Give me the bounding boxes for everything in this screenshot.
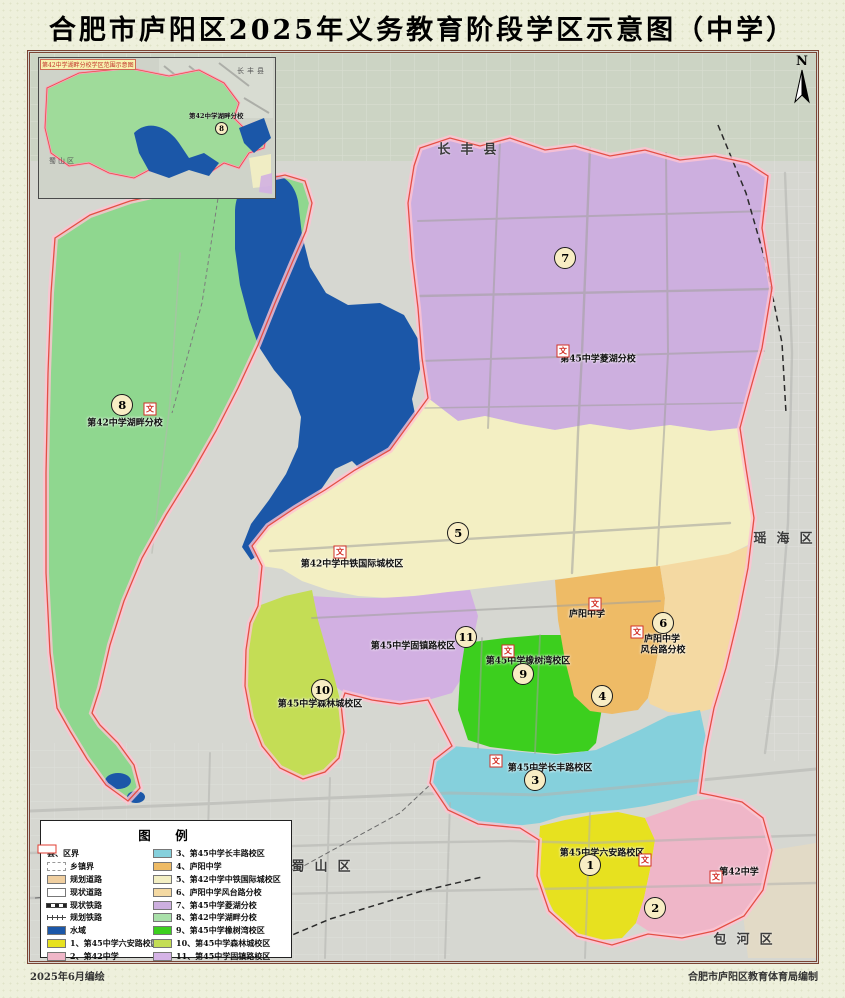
legend-item: 3、第45中学长丰路校区: [153, 847, 285, 860]
legend-item: 5、第42中学中铁国际城校区: [153, 873, 285, 886]
legend-item-label: 1、第45中学六安路校区: [70, 938, 159, 949]
school-icon: 文: [710, 871, 723, 884]
legend-swatch: [153, 913, 172, 922]
school-icon: 文: [334, 546, 347, 559]
school-icon: 文: [631, 626, 644, 639]
legend-item-label: 6、庐阳中学风台路分校: [176, 887, 262, 898]
district-number-badge: 8: [111, 394, 133, 416]
legend-column-left: 县、区界乡镇界规划道路现状道路现状铁路规划铁路水域1、第45中学六安路校区2、第…: [47, 847, 153, 963]
legend-item: 6、庐阳中学风台路分校: [153, 886, 285, 899]
legend-item: 现状铁路: [47, 899, 153, 912]
legend-swatch: [47, 888, 66, 897]
legend-swatch: [153, 926, 172, 935]
inset-map-graphic: [39, 58, 273, 196]
legend-item-label: 水域: [70, 925, 86, 936]
school-district-label: 风台路分校: [640, 643, 685, 656]
district-number-badge: 2: [644, 897, 666, 919]
district-number-badge: 4: [591, 685, 613, 707]
legend-swatch: [38, 844, 57, 853]
legend-swatch: [153, 875, 172, 884]
legend-item-label: 11、第45中学固镇路校区: [176, 951, 270, 962]
district-number-badge: 6: [652, 612, 674, 634]
footer-date: 2025年6月编绘: [30, 968, 105, 983]
county-label: 长丰县: [437, 139, 506, 158]
district-number-badge: 3: [524, 769, 546, 791]
inset-circle-8: 8: [215, 122, 228, 135]
inset-map: 第42中学湖畔分校学区范围示意图 长丰县 蜀山区 第42中学湖畔分校 8: [38, 57, 276, 199]
legend-swatch: [47, 926, 66, 935]
legend-title: 图 例: [47, 825, 285, 844]
school-icon: 文: [589, 598, 602, 611]
school-district-label: 第42中学湖畔分校: [87, 416, 163, 429]
legend-item: 2、第42中学: [47, 950, 153, 963]
county-label: 蜀山区: [291, 856, 360, 875]
page: { "title": "合肥市庐阳区2025年义务教育阶段学区示意图（中学）",…: [0, 0, 845, 998]
legend-item-label: 乡镇界: [70, 861, 94, 872]
legend-item: 乡镇界: [47, 860, 153, 873]
legend-item-label: 9、第45中学橡树湾校区: [176, 925, 265, 936]
legend-item: 11、第45中学固镇路校区: [153, 950, 285, 963]
inset-school-label: 第42中学湖畔分校: [189, 110, 244, 120]
school-district-label: 第45中学六安路校区: [560, 846, 645, 859]
legend-swatch: [153, 901, 172, 910]
legend-item-label: 3、第45中学长丰路校区: [176, 848, 265, 859]
legend: 图 例 县、区界乡镇界规划道路现状道路现状铁路规划铁路水域1、第45中学六安路校…: [40, 820, 292, 958]
legend-swatch: [47, 915, 66, 920]
district-number-badge: 9: [512, 663, 534, 685]
legend-item-label: 规划道路: [70, 874, 102, 885]
legend-item-label: 8、第42中学湖畔分校: [176, 912, 257, 923]
district-number-badge: 10: [311, 679, 333, 701]
district-number-badge: 5: [447, 522, 469, 544]
school-district-label: 第45中学长丰路校区: [508, 761, 593, 774]
school-icon: 文: [639, 854, 652, 867]
legend-item-label: 2、第42中学: [70, 951, 119, 962]
inset-county-label: 长丰县: [237, 66, 267, 76]
legend-item: 9、第45中学橡树湾校区: [153, 924, 285, 937]
legend-item: 8、第42中学湖畔分校: [153, 911, 285, 924]
legend-swatch: [153, 952, 172, 961]
legend-swatch: [153, 862, 172, 871]
district-number-badge: 7: [554, 247, 576, 269]
district-number-badge: 1: [579, 854, 601, 876]
legend-swatch: [47, 875, 66, 884]
school-icon: 文: [557, 345, 570, 358]
district-number-badge: 11: [455, 626, 477, 648]
school-icon: 文: [490, 755, 503, 768]
legend-swatch: [47, 939, 66, 948]
legend-item: 县、区界: [47, 847, 153, 860]
legend-swatch: [153, 849, 172, 858]
legend-item: 规划铁路: [47, 911, 153, 924]
school-district-label: 第42中学: [719, 865, 759, 878]
school-icon: 文: [144, 403, 157, 416]
county-label: 包河区: [713, 929, 782, 948]
north-arrow: N: [788, 56, 816, 108]
legend-item-label: 现状铁路: [70, 900, 102, 911]
legend-swatch: [47, 862, 66, 871]
legend-swatch: [47, 952, 66, 961]
page-title: 合肥市庐阳区2025年义务教育阶段学区示意图（中学）: [0, 8, 845, 47]
legend-item-label: 10、第45中学森林城校区: [176, 938, 270, 949]
inset-district-label: 蜀山区: [49, 156, 76, 166]
legend-item-label: 规划铁路: [70, 912, 102, 923]
legend-item: 水域: [47, 924, 153, 937]
legend-item: 现状道路: [47, 886, 153, 899]
county-label: 瑶海区: [753, 528, 822, 547]
legend-item-label: 5、第42中学中铁国际城校区: [176, 874, 281, 885]
school-icon: 文: [502, 645, 515, 658]
school-district-label: 第45中学菱湖分校: [560, 352, 636, 365]
legend-item: 4、庐阳中学: [153, 860, 285, 873]
legend-column-right: 3、第45中学长丰路校区4、庐阳中学5、第42中学中铁国际城校区6、庐阳中学风台…: [153, 847, 285, 963]
legend-item: 7、第45中学菱湖分校: [153, 899, 285, 912]
legend-item: 1、第45中学六安路校区: [47, 937, 153, 950]
legend-item-label: 7、第45中学菱湖分校: [176, 900, 257, 911]
legend-swatch: [153, 888, 172, 897]
legend-item-label: 4、庐阳中学: [176, 861, 222, 872]
inset-title: 第42中学湖畔分校学区范围示意图: [40, 59, 136, 70]
school-district-label: 第45中学固镇路校区: [371, 639, 456, 652]
legend-swatch: [153, 939, 172, 948]
footer-credit: 合肥市庐阳区教育体育局编制: [688, 968, 818, 983]
north-label: N: [788, 56, 816, 68]
legend-item: 10、第45中学森林城校区: [153, 937, 285, 950]
north-arrow-icon: [788, 68, 816, 106]
legend-item: 规划道路: [47, 873, 153, 886]
legend-item-label: 现状道路: [70, 887, 102, 898]
school-district-label: 第42中学中铁国际城校区: [301, 557, 404, 570]
legend-swatch: [47, 904, 66, 907]
